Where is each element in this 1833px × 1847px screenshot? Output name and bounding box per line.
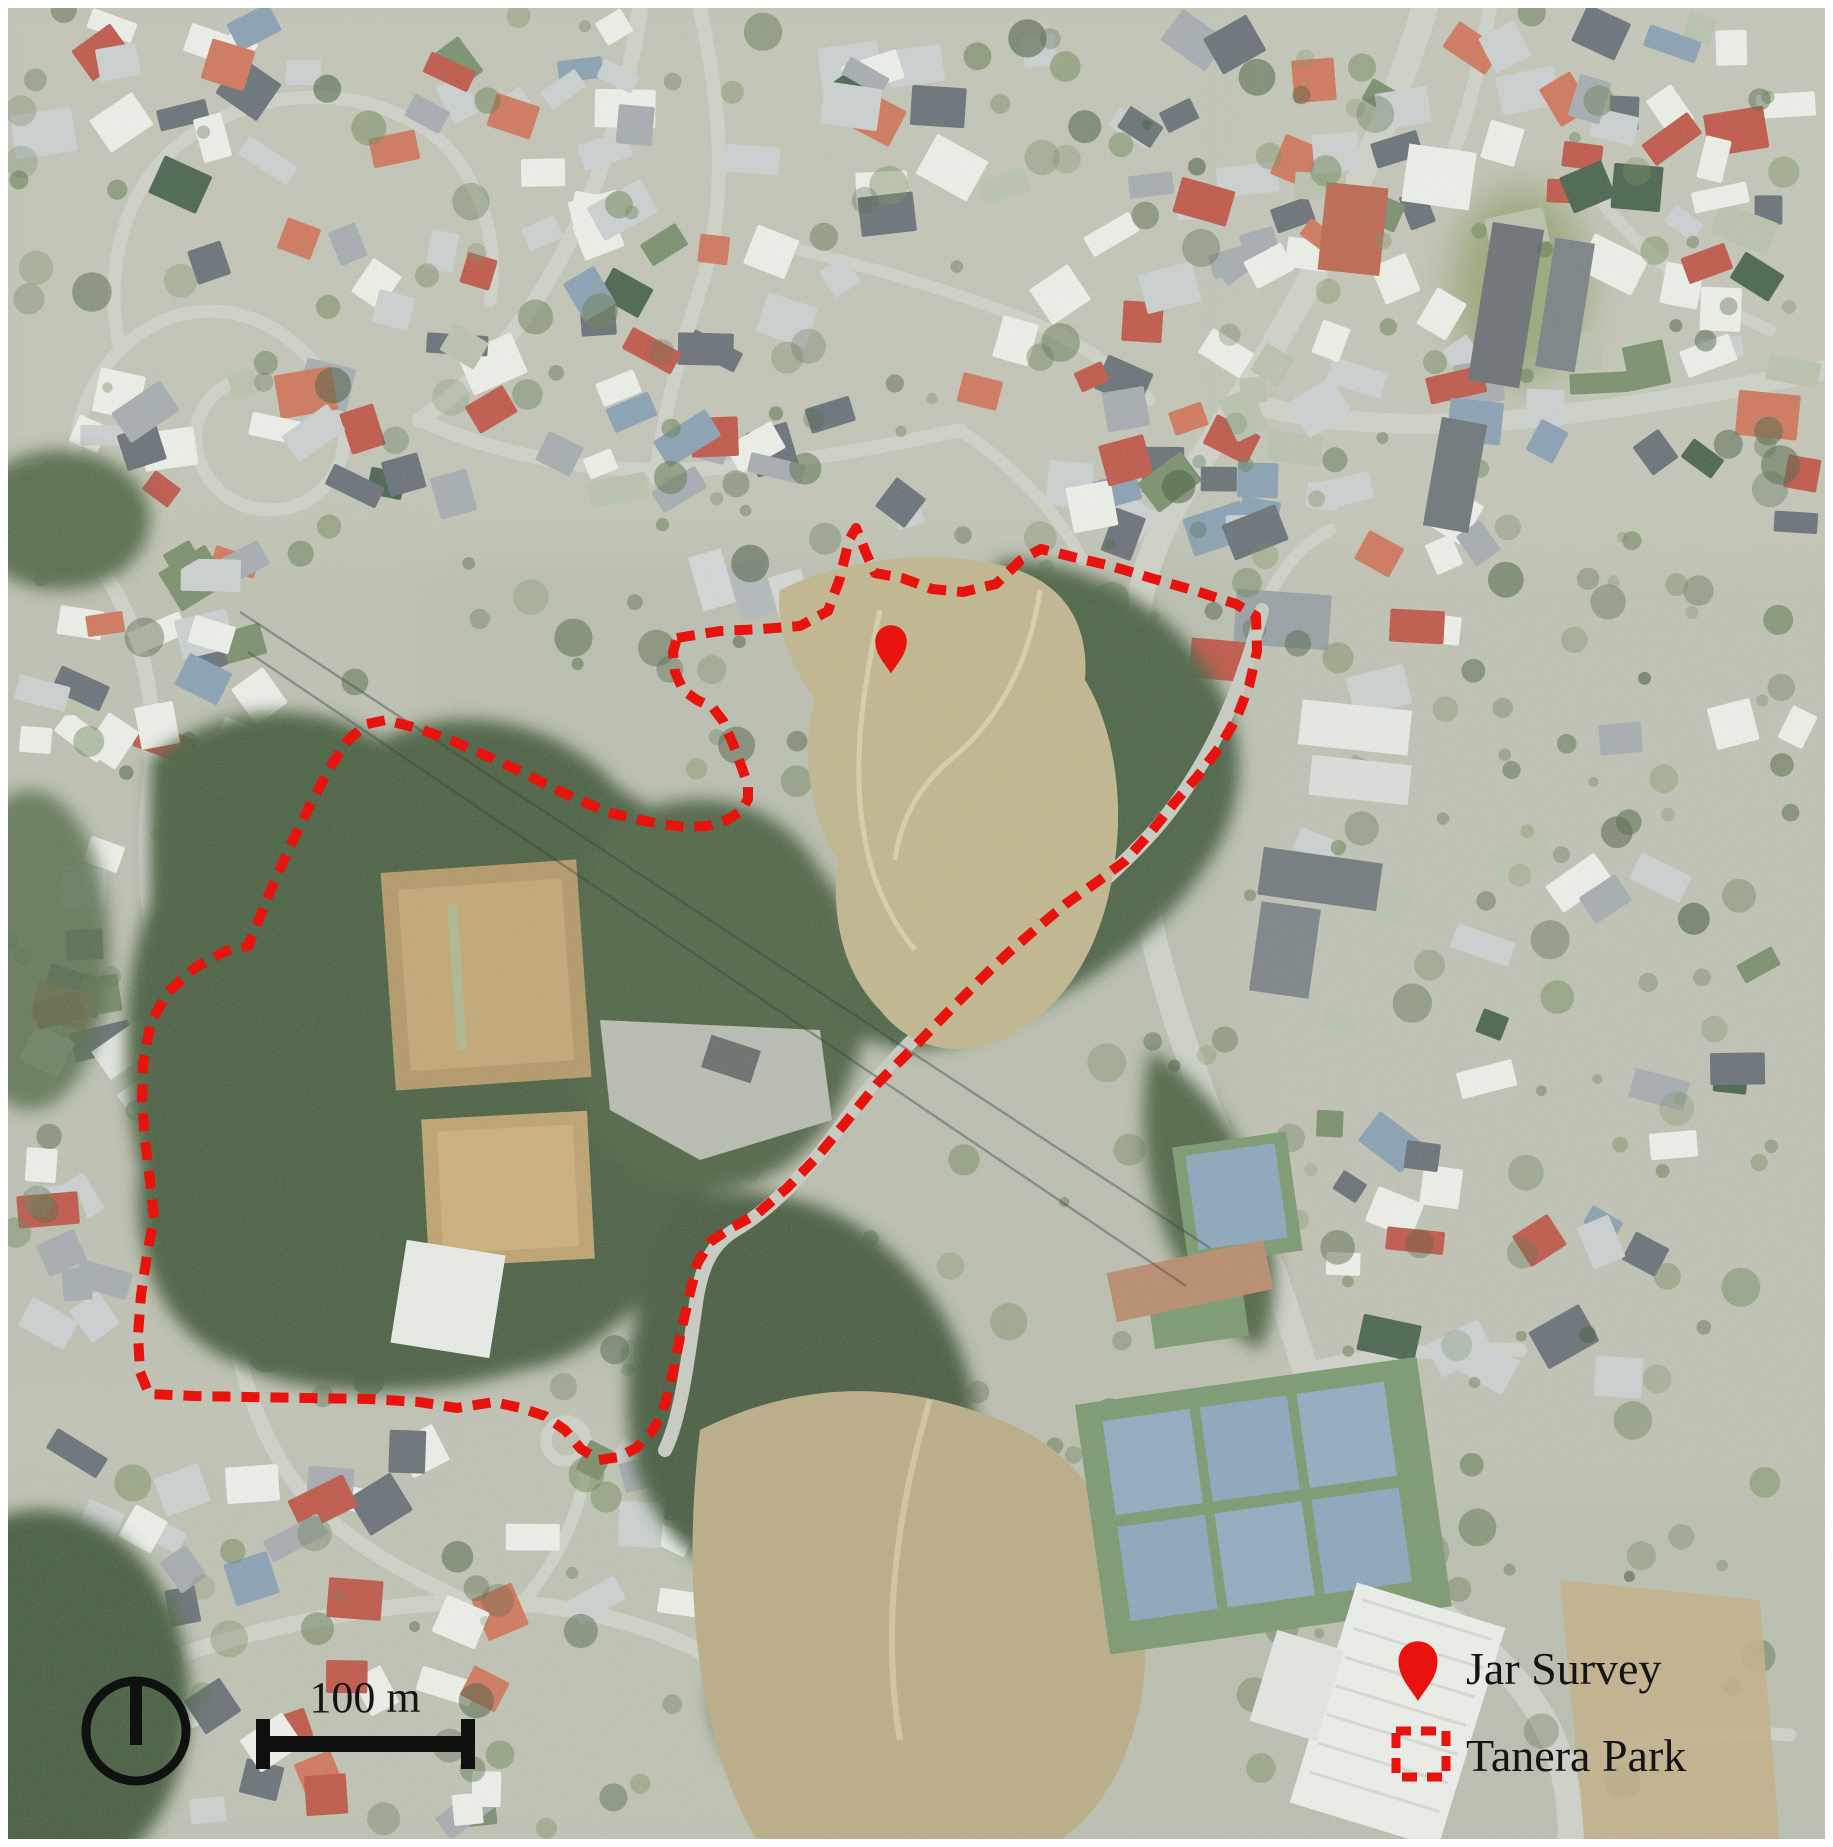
legend-label: Tanera Park <box>1466 1730 1686 1781</box>
photo-grain <box>0 0 1833 1847</box>
legend-label: Jar Survey <box>1466 1643 1661 1694</box>
scale-bar-label: 100 m <box>309 1673 420 1722</box>
aerial-map: 100 m Jar Survey Tanera Park <box>0 0 1833 1847</box>
figure-canvas: 100 m Jar Survey Tanera Park <box>0 0 1833 1847</box>
